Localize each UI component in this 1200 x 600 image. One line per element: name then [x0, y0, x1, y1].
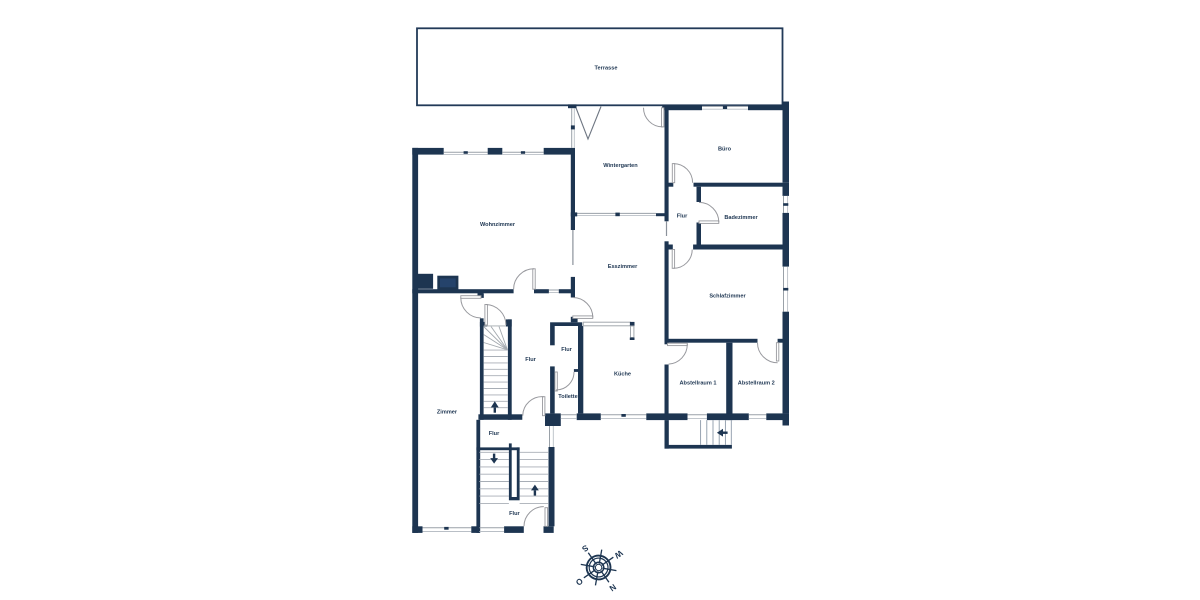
svg-text:Flur: Flur — [525, 357, 536, 363]
svg-text:Flur: Flur — [489, 431, 500, 437]
svg-text:Büro: Büro — [718, 147, 732, 153]
svg-text:Flur: Flur — [677, 214, 688, 220]
svg-text:Zimmer: Zimmer — [437, 410, 458, 416]
svg-text:Abstellraum 2: Abstellraum 2 — [738, 380, 775, 386]
svg-text:Esszimmer: Esszimmer — [608, 264, 638, 270]
svg-text:Flur: Flur — [561, 347, 572, 353]
svg-text:Terrasse: Terrasse — [595, 65, 618, 71]
svg-text:Badezimmer: Badezimmer — [724, 215, 758, 221]
svg-text:Wohnzimmer: Wohnzimmer — [480, 222, 516, 228]
svg-text:Toilette: Toilette — [558, 394, 577, 400]
svg-text:Wintergarten: Wintergarten — [603, 163, 638, 169]
svg-text:Küche: Küche — [614, 372, 631, 378]
svg-text:Abstellraum 1: Abstellraum 1 — [680, 380, 717, 386]
svg-text:Flur: Flur — [509, 511, 520, 517]
svg-text:Schlafzimmer: Schlafzimmer — [709, 294, 746, 300]
